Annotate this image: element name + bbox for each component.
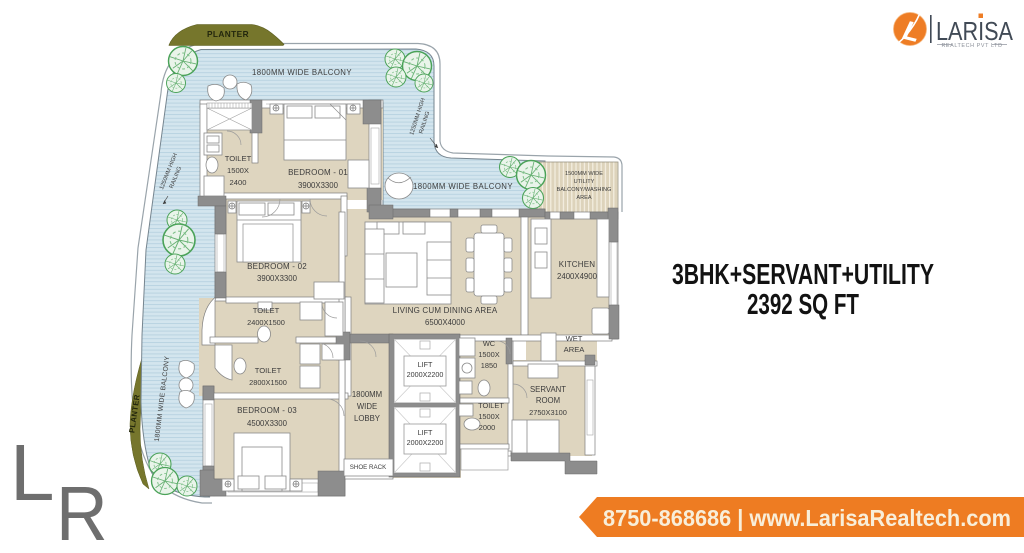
svg-text:LIVING CUM DINING AREA: LIVING CUM DINING AREA <box>393 306 498 315</box>
svg-text:WC: WC <box>483 339 496 348</box>
svg-text:1850: 1850 <box>481 361 497 370</box>
svg-text:BEDROOM - 02: BEDROOM - 02 <box>247 262 307 271</box>
svg-text:1500X: 1500X <box>478 350 499 359</box>
svg-text:LIFT: LIFT <box>418 428 433 437</box>
svg-text:1800MM WIDE BALCONY: 1800MM WIDE BALCONY <box>252 68 352 77</box>
svg-text:1500X: 1500X <box>227 166 249 175</box>
svg-text:3900X3300: 3900X3300 <box>298 181 339 190</box>
svg-text:SHOE RACK: SHOE RACK <box>350 464 387 471</box>
svg-text:2400X4900: 2400X4900 <box>557 272 598 281</box>
svg-text:TOILET: TOILET <box>225 154 252 163</box>
svg-text:1500MM WIDE: 1500MM WIDE <box>565 171 603 177</box>
svg-text:WET: WET <box>566 334 583 343</box>
svg-text:SERVANT: SERVANT <box>530 385 566 394</box>
svg-text:WIDE: WIDE <box>357 402 377 411</box>
svg-text:2400X1500: 2400X1500 <box>247 318 285 327</box>
svg-text:TOILET: TOILET <box>255 366 282 375</box>
svg-text:ROOM: ROOM <box>536 396 560 405</box>
svg-text:2000: 2000 <box>479 423 495 432</box>
svg-text:2800X1500: 2800X1500 <box>249 378 287 387</box>
svg-text:4500X3300: 4500X3300 <box>247 419 288 428</box>
svg-text:PLANTER: PLANTER <box>207 29 249 39</box>
svg-text:LOBBY: LOBBY <box>354 414 381 423</box>
svg-text:LARISA: LARISA <box>936 16 1014 46</box>
svg-text:1800MM: 1800MM <box>352 390 382 399</box>
svg-text:BALCONY/WASHING: BALCONY/WASHING <box>557 187 612 193</box>
svg-text:6500X4000: 6500X4000 <box>425 318 466 327</box>
svg-text:R: R <box>56 471 108 548</box>
svg-text:8750-868686 | www.LarisaRealte: 8750-868686 | www.LarisaRealtech.com <box>603 505 1011 531</box>
svg-text:TOILET: TOILET <box>253 306 280 315</box>
svg-text:UTILITY: UTILITY <box>574 179 595 185</box>
svg-text:3BHK+SERVANT+UTILITY: 3BHK+SERVANT+UTILITY <box>672 259 934 291</box>
svg-text:LIFT: LIFT <box>418 360 433 369</box>
svg-text:TOILET: TOILET <box>478 401 504 410</box>
svg-text:KITCHEN: KITCHEN <box>559 260 596 269</box>
svg-text:2400: 2400 <box>230 178 247 187</box>
svg-text:L: L <box>10 428 55 517</box>
svg-text:1800MM WIDE BALCONY: 1800MM WIDE BALCONY <box>413 182 513 191</box>
svg-text:BEDROOM - 03: BEDROOM - 03 <box>237 406 297 415</box>
svg-text:AREA: AREA <box>576 195 592 201</box>
svg-text:1500X: 1500X <box>478 412 499 421</box>
svg-text:3900X3300: 3900X3300 <box>257 274 298 283</box>
svg-text:REALTECH PVT LTD: REALTECH PVT LTD <box>941 43 1002 49</box>
svg-text:2750X3100: 2750X3100 <box>529 408 567 417</box>
svg-text:BEDROOM - 01: BEDROOM - 01 <box>288 168 348 177</box>
svg-text:2000X2200: 2000X2200 <box>407 370 444 379</box>
svg-text:2000X2200: 2000X2200 <box>407 438 444 447</box>
svg-text:2392 SQ FT: 2392 SQ FT <box>747 289 859 321</box>
svg-text:AREA: AREA <box>564 345 586 354</box>
